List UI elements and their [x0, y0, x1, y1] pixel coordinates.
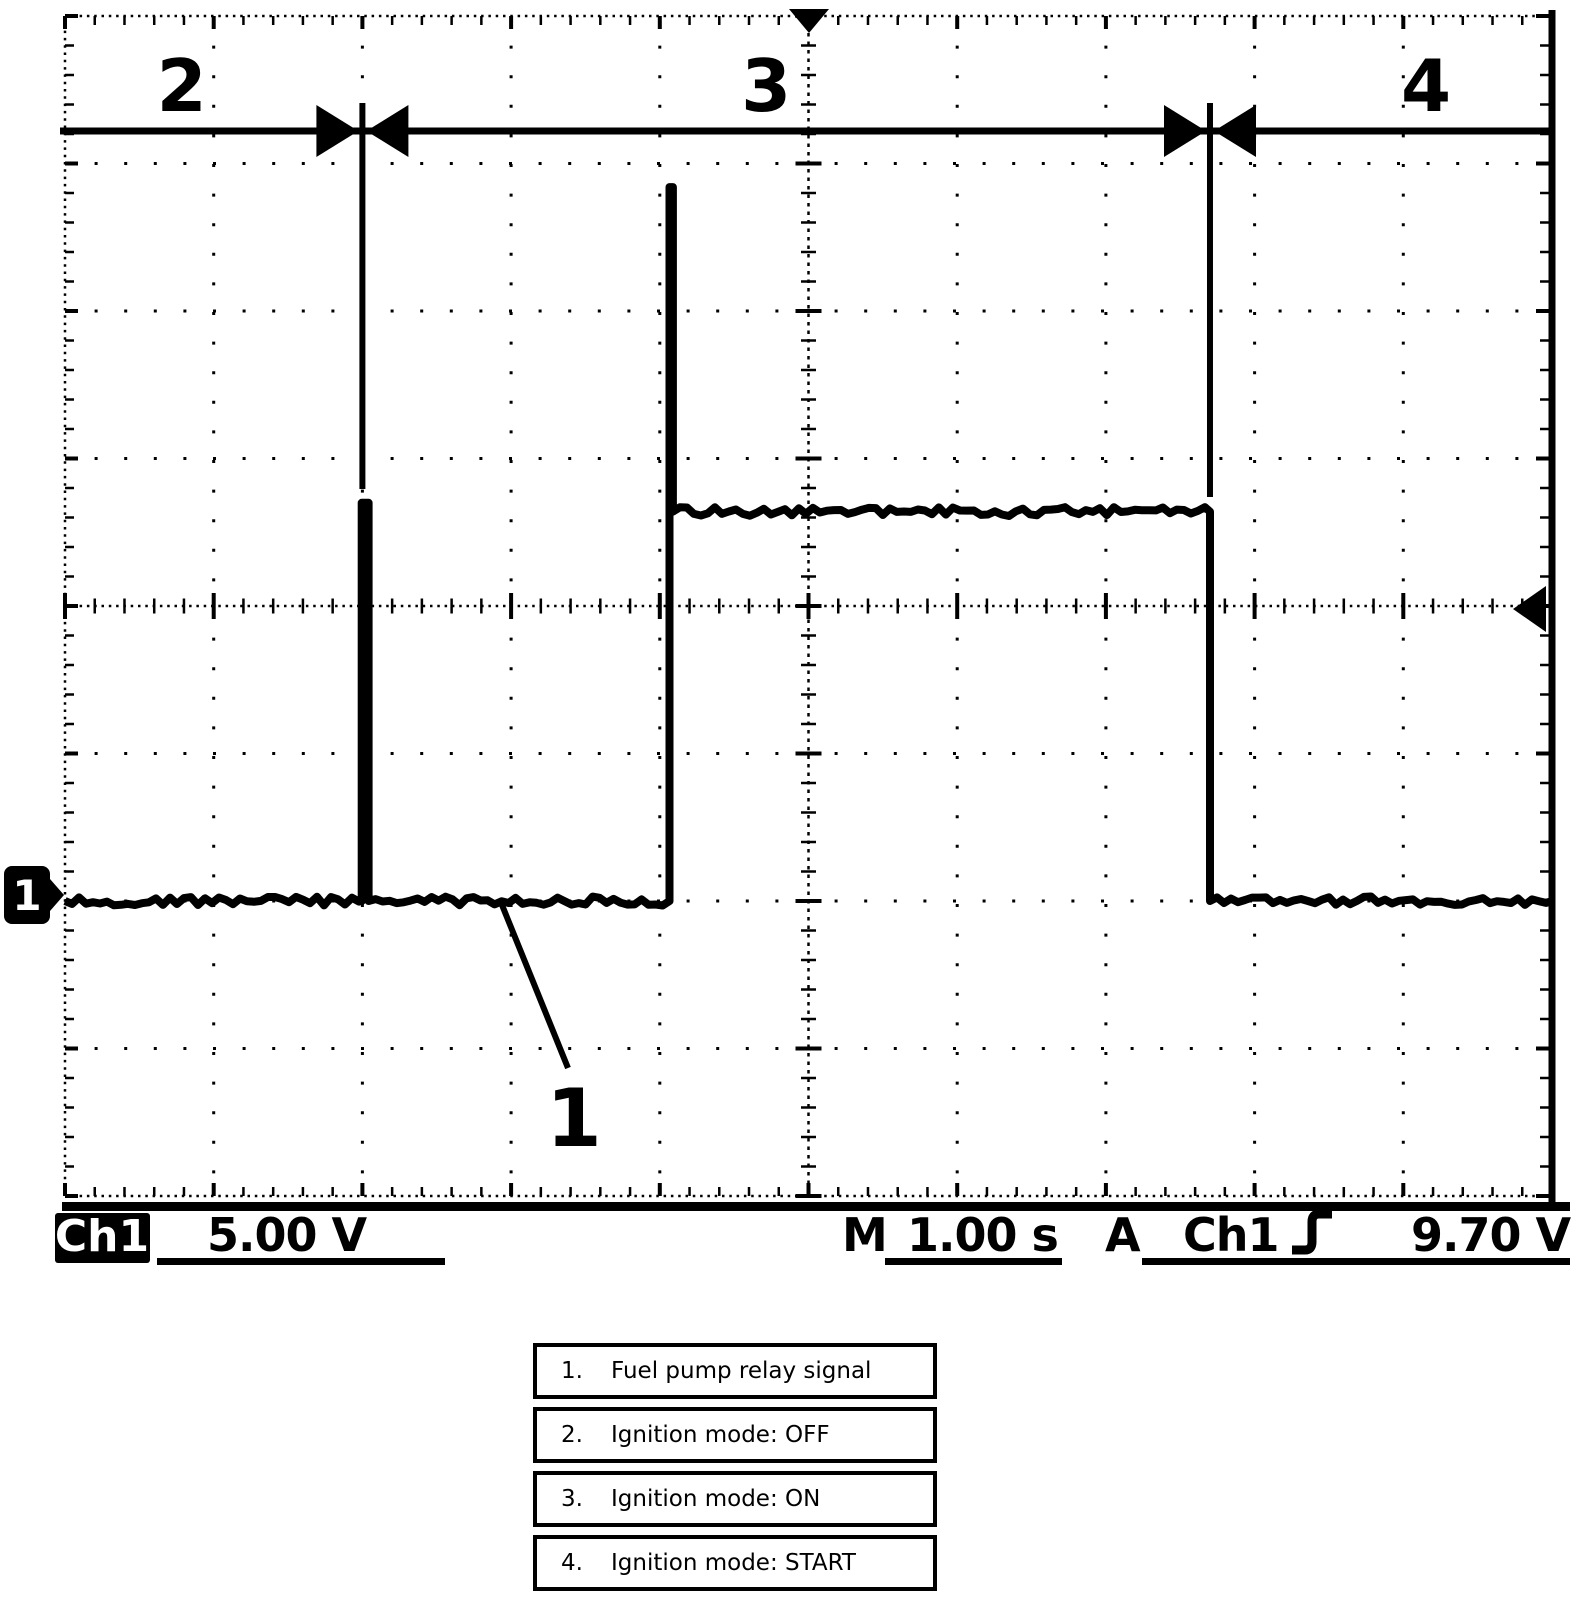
timebase-underline: [885, 1258, 1062, 1265]
legend-row-label: Ignition mode: OFF: [611, 1422, 933, 1448]
trigger-prefix: A: [1105, 1208, 1141, 1262]
time-per-div-value: 1.00 s: [907, 1208, 1058, 1262]
legend-table: 1.Fuel pump relay signal2.Ignition mode:…: [533, 1343, 937, 1599]
trigger-source-label: Ch1: [1183, 1208, 1279, 1262]
trigger-level-value: 9.70 V: [1411, 1208, 1572, 1262]
rising-slope-icon: [1292, 1214, 1332, 1250]
legend-row-number: 2.: [561, 1422, 611, 1448]
channel-ground-number: 1: [12, 871, 41, 920]
oscilloscope-screen: 234 1 1 Ch1 5.00 V M 1.00 s: [0, 0, 1584, 1320]
legend-row: 2.Ignition mode: OFF: [533, 1407, 937, 1463]
timebase-readout: M 1.00 s: [842, 1208, 1062, 1265]
trigger-readout: A Ch1 9.70 V: [1105, 1208, 1572, 1265]
timebase-prefix: M: [842, 1208, 887, 1262]
trigger-readout-underline: [1142, 1258, 1570, 1265]
volts-per-div-value: 5.00 V: [207, 1208, 368, 1262]
legend-row: 1.Fuel pump relay signal: [533, 1343, 937, 1399]
trigger-position-icon: [789, 9, 829, 33]
legend-row-number: 1.: [561, 1358, 611, 1384]
legend-row: 3.Ignition mode: ON: [533, 1471, 937, 1527]
trigger-level-icon: [1513, 586, 1546, 632]
callout-leader-line: [502, 905, 568, 1068]
legend-row-number: 3.: [561, 1486, 611, 1512]
legend-row-label: Ignition mode: ON: [611, 1486, 933, 1512]
callout-label: 1: [546, 1072, 602, 1165]
arrowhead-right-icon: [316, 105, 358, 157]
arrowhead-left-icon: [1214, 105, 1256, 157]
legend-row: 4.Ignition mode: START: [533, 1535, 937, 1591]
region-label: 3: [741, 44, 791, 128]
region-label: 2: [157, 44, 207, 128]
graticule-grid: [63, 10, 1554, 1211]
channel-badge-label: Ch1: [55, 1211, 149, 1262]
legend-row-label: Ignition mode: START: [611, 1550, 933, 1576]
oscillogram-page: 234 1 1 Ch1 5.00 V M 1.00 s: [0, 0, 1584, 1610]
legend-row-number: 4.: [561, 1550, 611, 1576]
legend-row-label: Fuel pump relay signal: [611, 1358, 933, 1384]
channel-ground-marker: 1: [4, 866, 64, 924]
channel-readout-underline: [157, 1258, 445, 1265]
region-label: 4: [1401, 44, 1451, 128]
arrowhead-left-icon: [366, 105, 408, 157]
channel-readout: Ch1 5.00 V: [55, 1208, 445, 1265]
arrowhead-right-icon: [1164, 105, 1206, 157]
